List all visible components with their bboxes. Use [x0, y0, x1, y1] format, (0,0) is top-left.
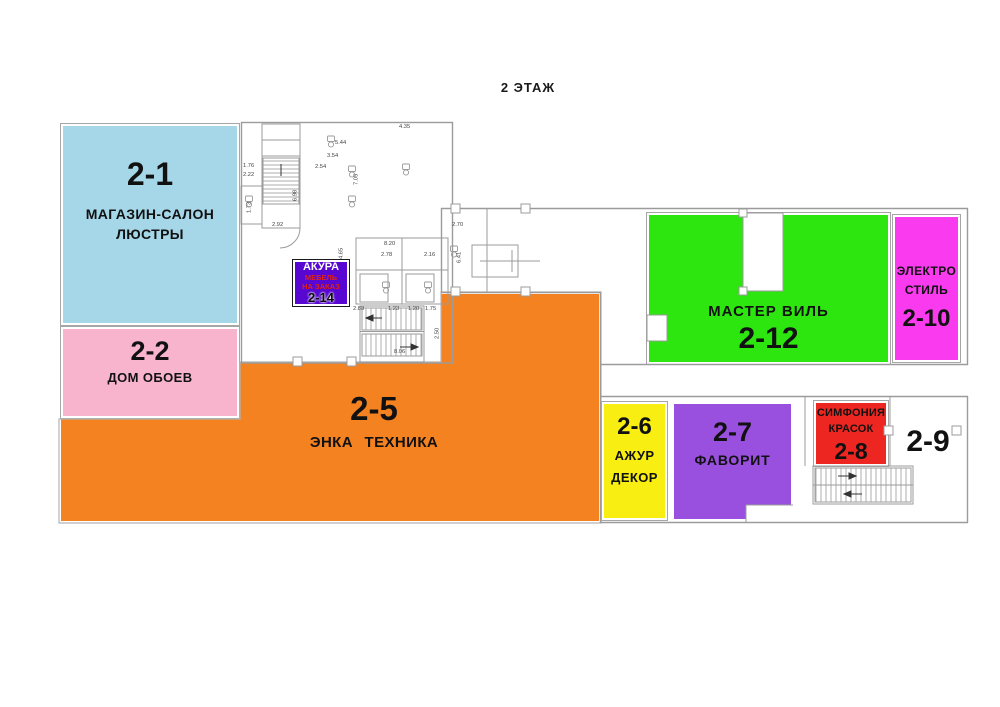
region-2-7-favorit: 2-7 ФАВОРИТ: [672, 402, 793, 521]
dimension-label: 6.41: [456, 252, 462, 263]
dimension-label: 1.20: [408, 306, 419, 312]
dimension-label: 2.88: [353, 306, 364, 312]
region-number: 2-6: [617, 414, 652, 439]
region-name-line: ДОМ ОБОЕВ: [107, 369, 192, 388]
dimension-label: 5.44: [335, 140, 346, 146]
dimension-label: 6.98: [292, 190, 298, 201]
badge-2-14-akura: АКУРА МЕБЕЛЬ НА ЗАКАЗ 2-14: [292, 259, 350, 307]
dimension-label: 1.73: [246, 202, 252, 213]
region-number: 2-9: [906, 426, 949, 458]
dimension-label: 1.75: [425, 306, 436, 312]
dimension-label: 8.20: [384, 241, 395, 247]
page-title: 2 ЭТАЖ: [428, 80, 628, 95]
region-name-line: ЭЛЕКТРО: [897, 262, 956, 281]
region-number: 2-2: [130, 337, 169, 365]
region-name-line: КРАСОК: [829, 422, 874, 438]
region-number: 2-12: [738, 323, 798, 355]
region-name-line: ЛЮСТРЫ: [116, 224, 184, 244]
region-name-line: ЭНКА ТЕХНИКА: [224, 432, 524, 454]
floor-plan-page: 2 ЭТАЖ 2-1 МАГАЗИН-САЛОН ЛЮСТРЫ 2-2 ДОМ …: [0, 0, 1000, 707]
badge-line: МЕБЕЛЬ: [305, 273, 337, 282]
dimension-label: 2.54: [315, 164, 326, 170]
wc-fixture-icons: [246, 136, 458, 293]
dimension-label: 1.76: [243, 163, 254, 169]
dimension-label: 3.54: [327, 153, 338, 159]
dimension-label: 2.78: [381, 252, 392, 258]
region-2-12-master-vil: МАСТЕР ВИЛЬ 2-12: [647, 213, 890, 364]
region-number: 2-5: [224, 392, 524, 427]
region-number: 2-10: [902, 306, 950, 331]
dimension-label: 2.16: [424, 252, 435, 258]
dimension-label: 2.92: [272, 222, 283, 228]
dimension-label: 8.06: [394, 349, 405, 355]
dimension-label: 1.23: [388, 306, 399, 312]
dimension-label: 2.22: [243, 172, 254, 178]
region-2-1-lustry: 2-1 МАГАЗИН-САЛОН ЛЮСТРЫ: [61, 124, 239, 325]
region-name-line: МАСТЕР ВИЛЬ: [708, 301, 829, 323]
region-number: 2-8: [834, 439, 867, 463]
badge-number: 2-14: [308, 291, 334, 305]
region-name-line: СТИЛЬ: [905, 281, 948, 300]
region-2-8-simfoniya-krasok: СИМФОНИЯ КРАСОК 2-8: [814, 401, 888, 466]
region-number: 2-1: [127, 158, 173, 192]
region-2-2-dom-oboev: 2-2 ДОМ ОБОЕВ: [61, 327, 239, 418]
region-2-9: 2-9: [888, 413, 968, 471]
dimension-label: 4.35: [399, 124, 410, 130]
dimension-label: 2.70: [452, 222, 463, 228]
region-number: 2-7: [713, 418, 752, 446]
region-name-line: ДЕКОР: [611, 467, 658, 489]
badge-brand: АКУРА: [303, 261, 339, 273]
region-2-10-elektro-stil: ЭЛЕКТРО СТИЛЬ 2-10: [893, 215, 960, 362]
dimension-label: 2.50: [434, 328, 440, 339]
region-name-line: СИМФОНИЯ: [817, 406, 885, 422]
region-name-line: МАГАЗИН-САЛОН: [86, 204, 215, 224]
region-name-line: ФАВОРИТ: [695, 450, 771, 470]
region-name-line: АЖУР: [615, 445, 655, 467]
dimension-label: 7.05: [353, 174, 359, 185]
dimension-label: 4.65: [338, 248, 344, 259]
region-2-6-azhur-dekor: 2-6 АЖУР ДЕКОР: [602, 402, 667, 520]
